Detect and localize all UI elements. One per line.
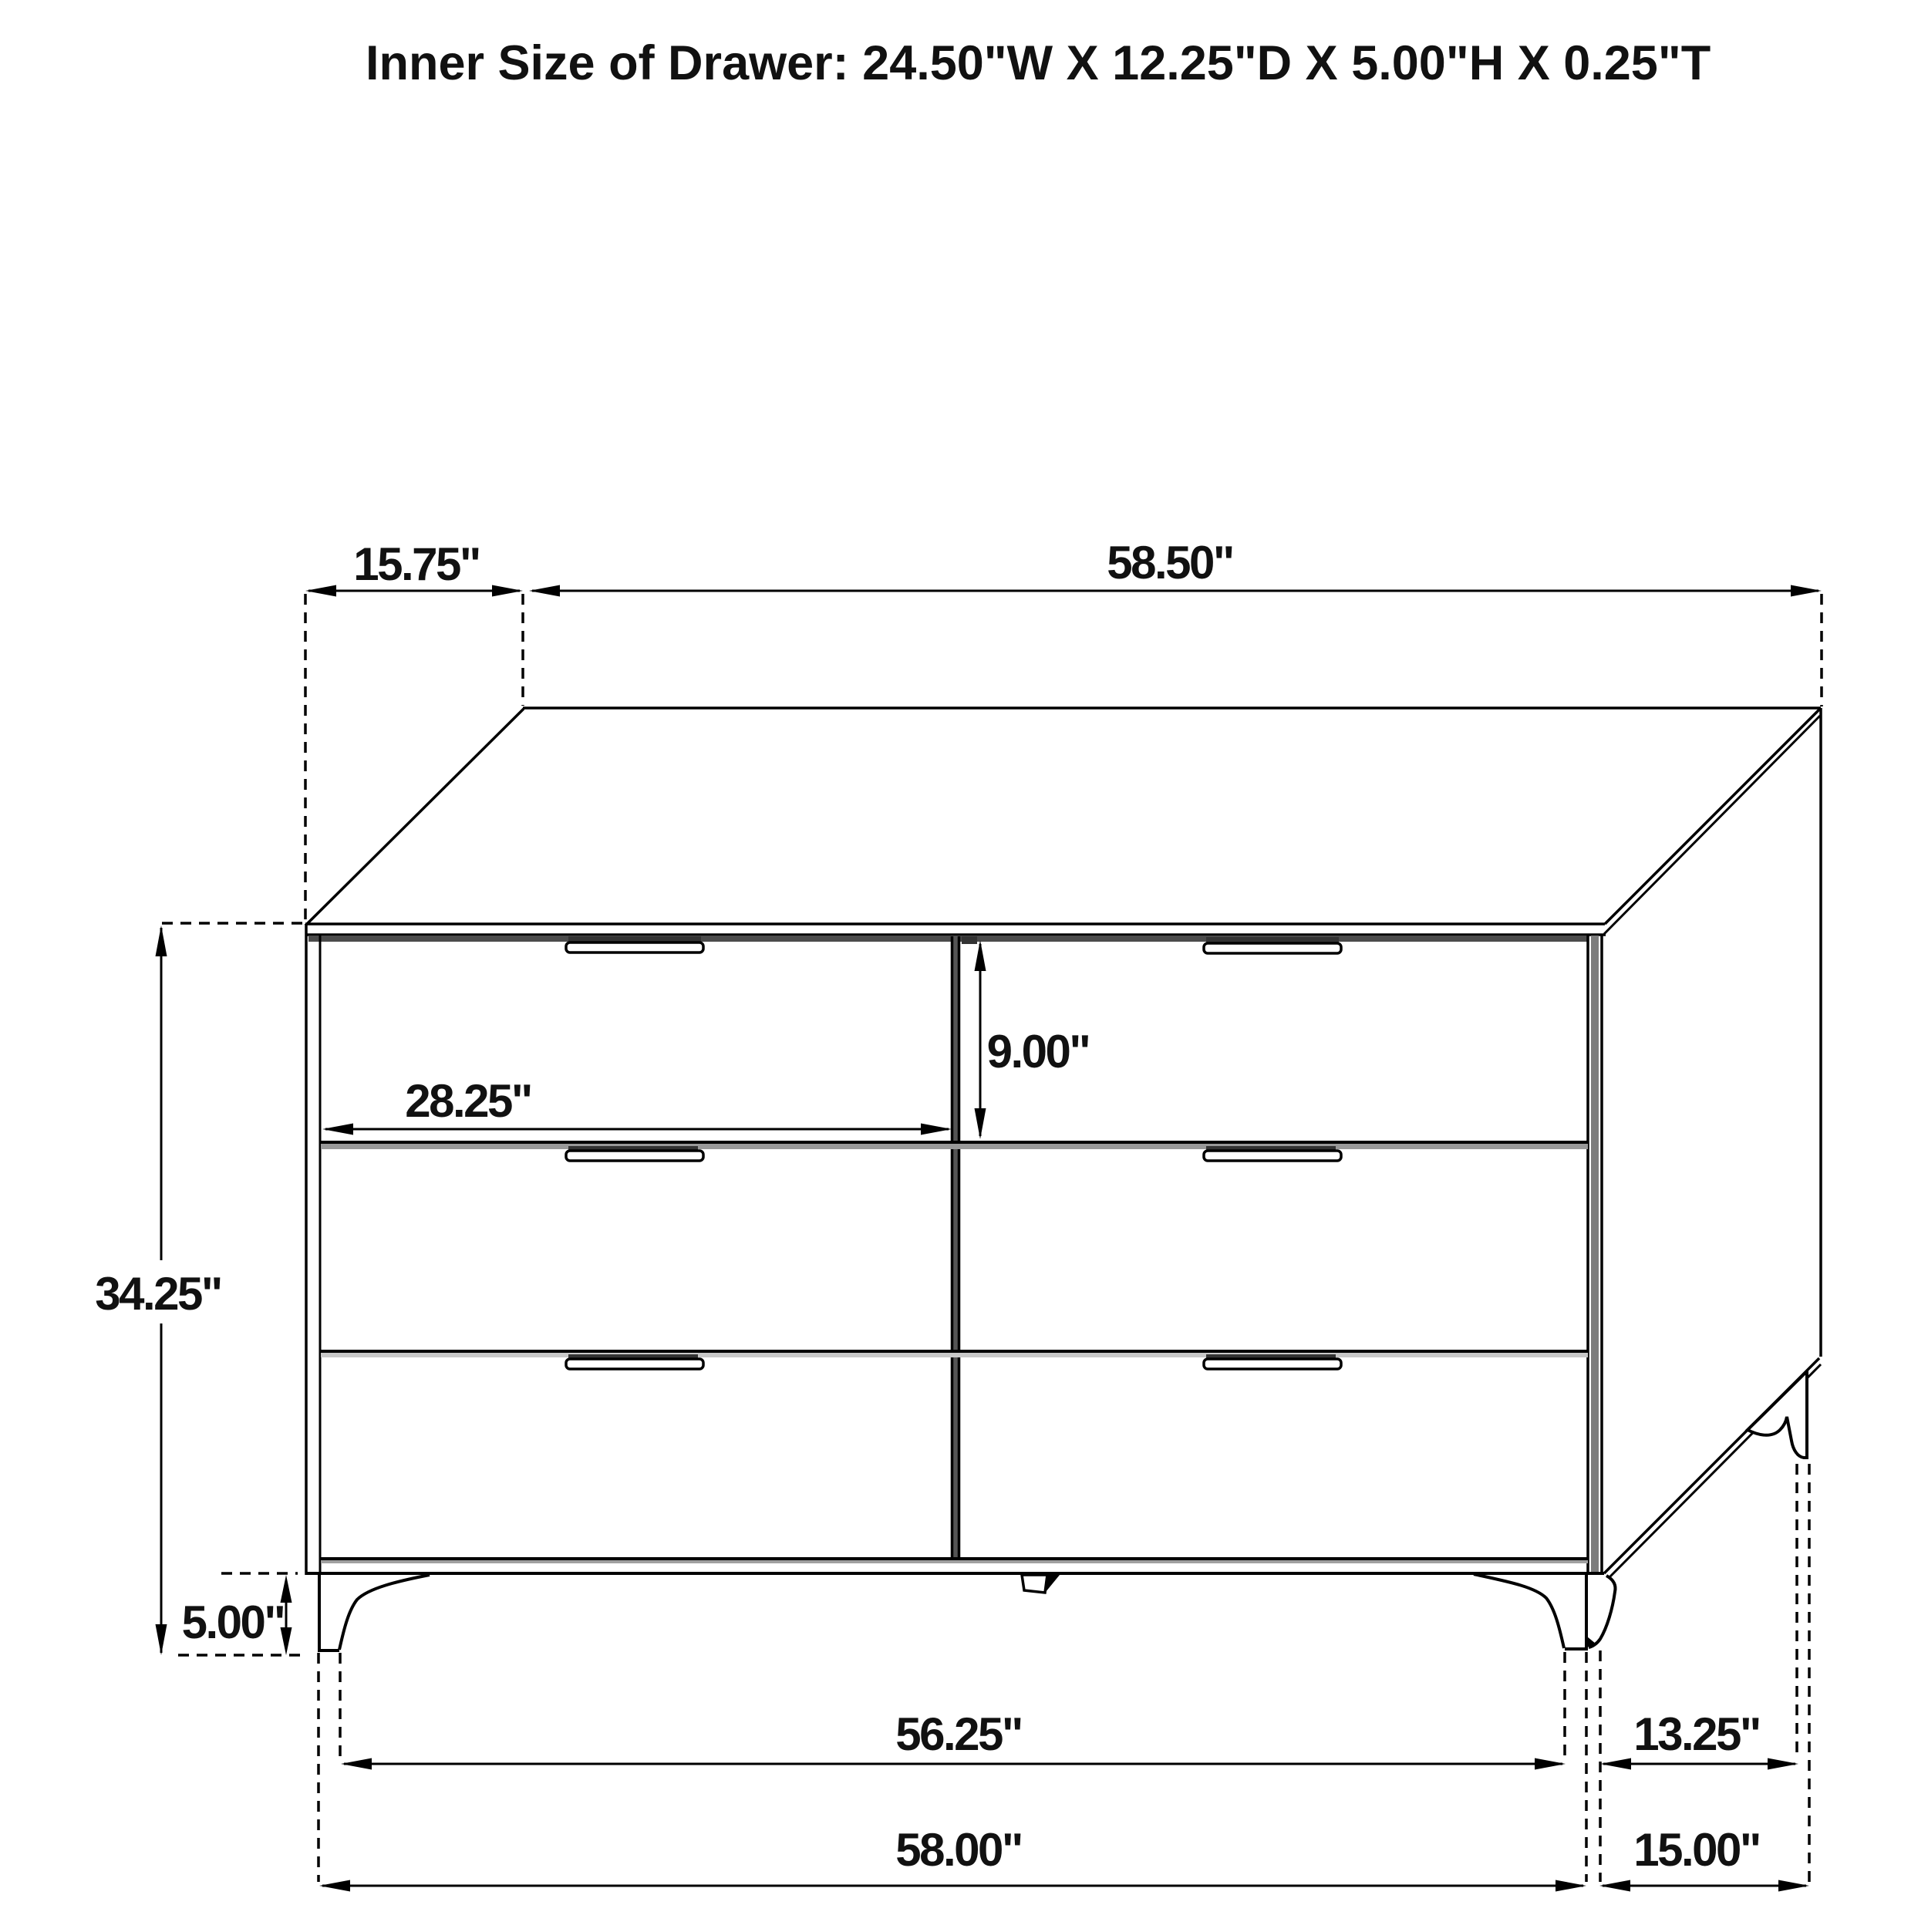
svg-text:28.25": 28.25" <box>405 1075 531 1127</box>
svg-text:13.25": 13.25" <box>1633 1708 1760 1760</box>
svg-text:58.00": 58.00" <box>895 1824 1022 1876</box>
svg-text:34.25": 34.25" <box>95 1268 221 1320</box>
svg-text:15.00": 15.00" <box>1633 1824 1760 1876</box>
svg-text:9.00": 9.00" <box>987 1026 1090 1077</box>
svg-text:5.00": 5.00" <box>182 1597 285 1648</box>
svg-text:58.50": 58.50" <box>1107 537 1233 588</box>
svg-text:15.75": 15.75" <box>353 538 480 590</box>
svg-text:56.25": 56.25" <box>895 1708 1022 1760</box>
svg-text:Inner Size of Drawer: 24.50"W: Inner Size of Drawer: 24.50"W X 12.25"D … <box>366 36 1711 90</box>
